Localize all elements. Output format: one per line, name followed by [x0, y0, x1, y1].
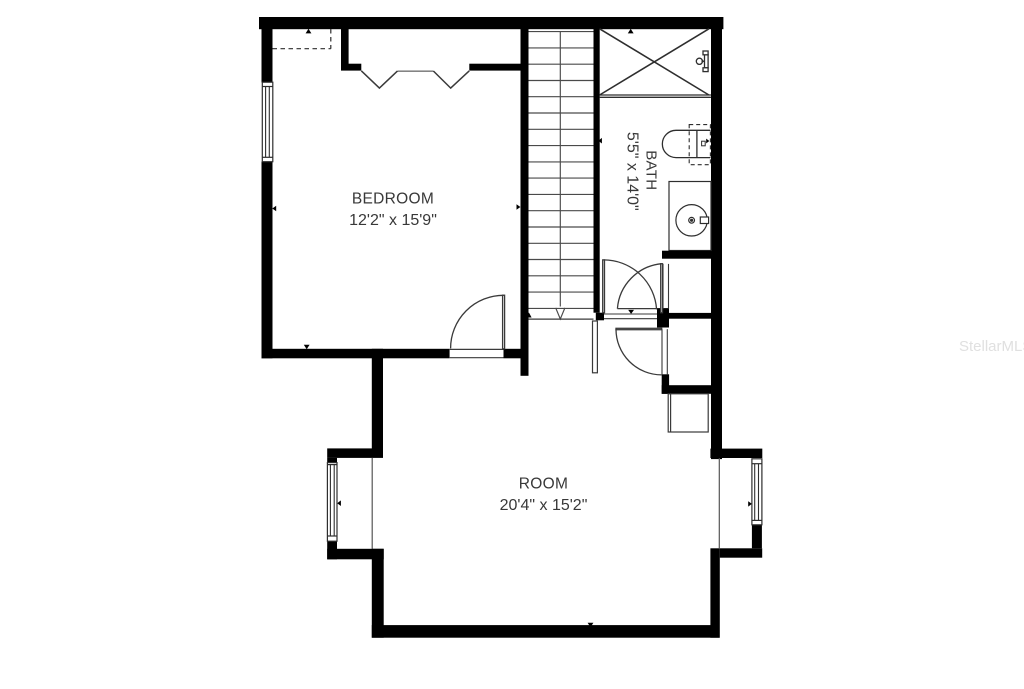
svg-text:20'4" x 15'2": 20'4" x 15'2" — [500, 497, 588, 514]
svg-text:12'2" x 15'9": 12'2" x 15'9" — [349, 212, 437, 229]
svg-text:ROOM: ROOM — [519, 476, 568, 493]
svg-text:StellarMLS: StellarMLS — [959, 338, 1024, 355]
svg-text:BATH: BATH — [642, 150, 659, 190]
svg-text:5'5" x 14'0": 5'5" x 14'0" — [623, 132, 640, 211]
svg-text:BEDROOM: BEDROOM — [352, 191, 434, 208]
